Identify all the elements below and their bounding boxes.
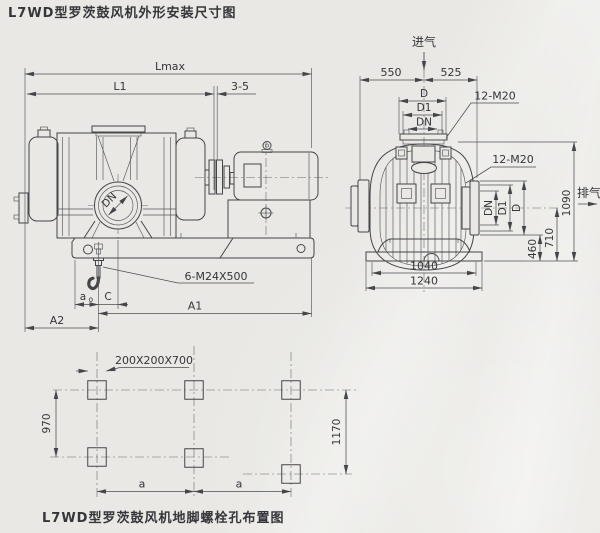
inlet-callout: 进气	[412, 34, 436, 70]
outlet-label: 排气	[577, 185, 600, 200]
dim-d-v-label: D	[511, 204, 523, 212]
left-shaft-fitting	[14, 193, 28, 223]
dim-525-label: 525	[441, 66, 462, 79]
dim-a-left-label: a	[139, 478, 146, 491]
plate-bolt-hole-left	[84, 245, 93, 254]
base-plate	[72, 233, 314, 258]
motor-eye-bolt	[263, 142, 271, 150]
bolts-side-label: 12-M20	[492, 153, 533, 166]
dim-1090-label: 1090	[561, 190, 573, 217]
anchor-bolt-label: 6-M24X500	[185, 270, 248, 283]
dim-970: 970	[41, 390, 56, 457]
dim-lmax-label: Lmax	[155, 60, 186, 73]
dim-dn-label: DN	[416, 117, 432, 129]
dim-c-label: C	[104, 291, 111, 303]
inlet-flange	[400, 130, 447, 144]
right-end-cover	[176, 128, 205, 220]
plan-view: 200X200X700 970 1170 a a	[41, 346, 356, 497]
dim-dn-v-label: DN	[483, 200, 495, 216]
dim-lmax: Lmax	[25, 60, 312, 332]
dim-1240-label: 1240	[410, 275, 438, 288]
inlet-neck	[412, 146, 435, 162]
side-view: DN	[14, 60, 330, 332]
dim-gap: 3-5	[214, 80, 256, 190]
dim-l1: L1	[27, 80, 214, 94]
dim-inlet-flange: D D1 DN	[399, 88, 446, 134]
dim-710-label: 710	[544, 228, 556, 248]
dim-a0-sub: o	[89, 295, 94, 304]
motor-terminal-box	[244, 164, 261, 187]
coupling	[205, 160, 234, 194]
bolts-top-callout: 12-M20	[446, 90, 519, 139]
anchor-bolt-callout: 6-M24X500	[103, 267, 254, 283]
dim-d1-v-label: D1	[497, 201, 509, 216]
outlet-callout: 排气	[577, 185, 600, 204]
inlet-label: 进气	[412, 34, 436, 49]
dim-1040-label: 1040	[410, 260, 438, 273]
dim-a0-label: a	[80, 291, 86, 303]
motor	[234, 142, 318, 201]
dim-1170-label: 1170	[331, 419, 343, 446]
dim-1170: 1170	[331, 390, 346, 474]
bolts-side-callout: 12-M20	[466, 153, 536, 183]
engineering-drawing: L7WD型罗茨鼓风机外形安装尺寸图	[0, 0, 600, 533]
dim-a1-label: A1	[188, 300, 203, 313]
dim-a2-label: A2	[50, 314, 65, 327]
dim-base-widths: 1040 1240	[366, 260, 482, 292]
boss-right	[431, 184, 450, 203]
bolts-top-label: 12-M20	[474, 90, 515, 103]
dim-a1: A1	[99, 300, 312, 314]
dim-gap-label: 3-5	[231, 80, 249, 93]
dim-d-label: D	[420, 88, 428, 100]
dim-l1-label: L1	[113, 80, 126, 93]
end-casing	[370, 144, 474, 270]
suction-flange-circle: DN	[95, 182, 142, 229]
exhaust-flange	[462, 181, 479, 235]
anchor-bolt-hook	[89, 242, 104, 332]
dim-550-label: 550	[381, 66, 402, 79]
page-title: L7WD型罗茨鼓风机外形安装尺寸图	[8, 5, 236, 21]
motor-base-block	[228, 200, 310, 238]
end-view: 进气 550 525 D D1 DN 12-M20	[345, 34, 600, 292]
dim-460-label: 460	[527, 239, 539, 259]
dim-a2: A2	[25, 314, 99, 328]
plan-caption: L7WD型罗茨鼓风机地脚螺栓孔布置图	[42, 510, 284, 526]
top-mount-plate	[92, 126, 145, 132]
boss-left	[397, 184, 416, 203]
dim-a0-c: a o C	[75, 240, 128, 309]
dim-a-right-label: a	[236, 478, 243, 491]
dim-d1-label: D1	[417, 102, 432, 114]
pocket-size-label: 200X200X700	[115, 354, 193, 367]
drive-shaft-end	[351, 180, 369, 232]
plate-bolt-hole-right	[297, 245, 305, 253]
dim-970-label: 970	[41, 413, 53, 433]
pocket-size-callout: 200X200X700	[76, 354, 193, 371]
left-end-cover	[29, 127, 58, 221]
